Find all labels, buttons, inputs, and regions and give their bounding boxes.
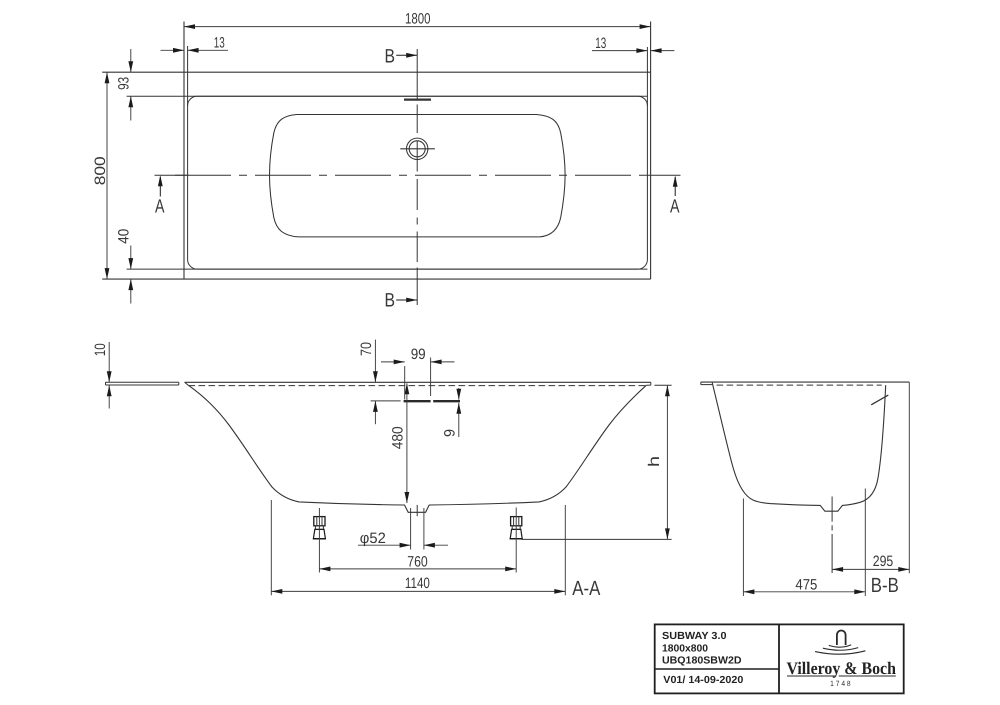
- svg-text:800: 800: [92, 156, 109, 185]
- svg-text:B-B: B-B: [871, 574, 899, 597]
- svg-text:B: B: [384, 45, 395, 67]
- svg-text:9: 9: [441, 429, 458, 437]
- svg-text:93: 93: [116, 77, 133, 90]
- svg-text:A: A: [670, 196, 680, 217]
- svg-text:99: 99: [411, 346, 426, 363]
- svg-text:h: h: [646, 456, 663, 467]
- svg-text:B: B: [384, 290, 395, 312]
- svg-text:A-A: A-A: [572, 577, 600, 600]
- svg-text:475: 475: [795, 577, 817, 594]
- svg-text:A: A: [155, 196, 165, 217]
- svg-text:760: 760: [407, 554, 428, 571]
- svg-text:1 7 4 8: 1 7 4 8: [830, 679, 851, 688]
- svg-text:1800: 1800: [405, 11, 431, 28]
- svg-text:13: 13: [214, 35, 225, 52]
- svg-text:13: 13: [595, 35, 606, 52]
- svg-text:UBQ180SBW2D: UBQ180SBW2D: [662, 656, 742, 667]
- svg-text:480: 480: [390, 426, 407, 449]
- svg-text:Villeroy & Boch: Villeroy & Boch: [786, 658, 896, 678]
- svg-text:1140: 1140: [405, 575, 430, 592]
- svg-text:SUBWAY 3.0: SUBWAY 3.0: [662, 631, 727, 642]
- svg-text:10: 10: [92, 343, 109, 356]
- svg-text:40: 40: [116, 229, 133, 244]
- svg-text:φ52: φ52: [360, 530, 386, 547]
- svg-text:V01/ 14-09-2020: V01/ 14-09-2020: [663, 675, 743, 686]
- svg-text:295: 295: [873, 553, 894, 570]
- svg-text:70: 70: [358, 342, 375, 356]
- svg-text:1800x800: 1800x800: [662, 643, 708, 654]
